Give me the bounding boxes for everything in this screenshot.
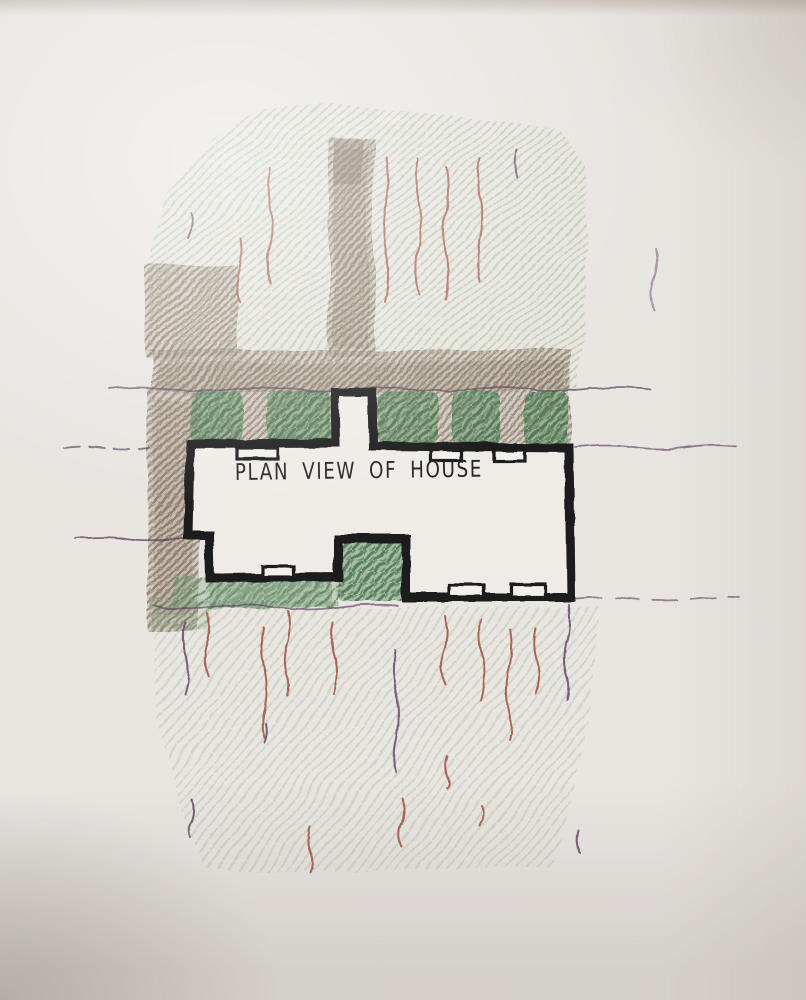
guide-line-left-wall (64, 447, 149, 450)
sketch-canvas: PLAN VIEW OF HOUSE (0, 0, 806, 1000)
guide-line-right-wall-bottom (577, 597, 740, 600)
window (449, 585, 484, 597)
driveway-band-dense (156, 362, 566, 389)
window (237, 448, 278, 459)
hedge-left-spill (150, 598, 210, 630)
window (494, 450, 525, 461)
hedge-top-5 (524, 391, 568, 446)
window (511, 584, 545, 597)
guide-line-right-wall-top (575, 445, 736, 449)
hedge-top-3 (378, 391, 438, 444)
hedge-recess (338, 539, 404, 601)
path-left-upper (146, 265, 238, 357)
window (262, 566, 293, 577)
hedge-top-4 (452, 391, 500, 445)
lawn-bottom-hatch (152, 607, 600, 872)
photo-of-sketch: PLAN VIEW OF HOUSE (0, 0, 806, 1000)
stem-line-purple (650, 248, 656, 310)
hedge-bottom-band-dense (208, 580, 332, 607)
plan-title-text: PLAN VIEW OF HOUSE (235, 457, 483, 486)
path-vertical-dark-tip (334, 139, 362, 185)
hedge-top-1 (191, 391, 243, 443)
stem-line-purple (577, 830, 579, 852)
hedge-top-2 (266, 391, 330, 444)
